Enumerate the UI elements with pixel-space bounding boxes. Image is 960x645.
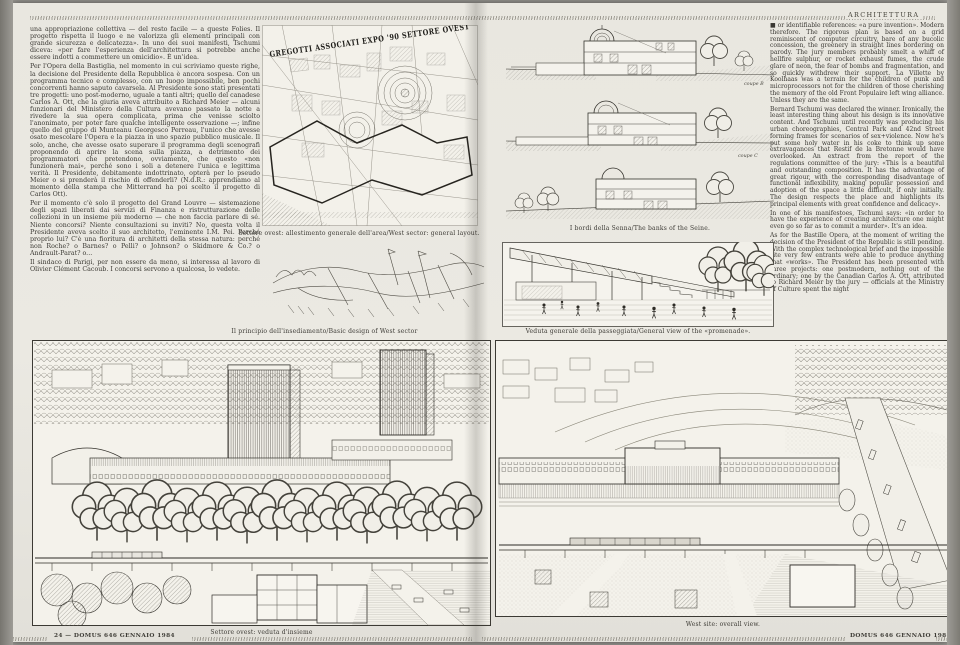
promenade-caption: Veduta generale della passeggiata/Genera…: [474, 328, 802, 335]
section-coupe-b: coupe B: [506, 25, 774, 87]
footer-left-page-number: 24 — DOMUS 646 GENNAIO 1984: [54, 633, 175, 639]
magazine-spread: ARCHITETTURA una appropriazione colletti…: [12, 3, 948, 642]
west-site-panorama-right: [495, 340, 951, 617]
coupe-b-label: coupe B: [744, 81, 764, 87]
map-caption: Settore ovest: allestimento generale del…: [230, 230, 488, 237]
paragraph: Per l'Opera della Bastiglia, nel momento…: [30, 63, 260, 198]
italian-text-column: una appropriazione collettiva — del rest…: [30, 26, 260, 275]
west-sector-map-drawing: GREGOTTI ASSOCIATI EXPO '90 SETTORE OVES…: [262, 25, 478, 226]
sketch-caption: Il principio dell'insediamento/Basic des…: [212, 328, 437, 335]
promenade-drawing: [502, 242, 774, 327]
concept-sketch-drawing: [268, 243, 488, 325]
scan-edge-right: [947, 0, 960, 645]
paragraph: una appropriazione collettiva — del rest…: [30, 26, 260, 61]
west-sector-panorama-left: [32, 340, 491, 626]
section-coupe-c: coupe C: [506, 101, 774, 159]
seine-sections-drawing: coupe B coupe C: [506, 23, 774, 225]
english-text-column: ■ or identifiable references: «a pure in…: [770, 23, 944, 296]
paragraph: As for the Bastille Opera, at the moment…: [770, 233, 944, 294]
coupe-c-label: coupe C: [738, 153, 758, 159]
paragraph: Bernard Tschumi was declared the winner.…: [770, 107, 944, 209]
paragraph: Per il momento c'è solo il progetto del …: [30, 200, 260, 257]
paragraph: ■ or identifiable references: «a pure in…: [770, 23, 944, 105]
sections-caption: I bordi della Senna/The banks of the Sei…: [506, 225, 774, 232]
paragraph: In one of his manifestoes, Tschumi says:…: [770, 211, 944, 231]
section-header: ARCHITETTURA: [845, 11, 922, 19]
section-third: [506, 168, 774, 219]
scan-edge-left: [0, 0, 13, 645]
footer-rule: [192, 637, 472, 641]
paragraph: Il sindaco di Parigi, per non essere da …: [30, 259, 260, 273]
page-gutter: [464, 3, 488, 642]
panorama-right-caption: West site: overall view.: [495, 621, 951, 628]
footer-rule: [482, 637, 846, 641]
